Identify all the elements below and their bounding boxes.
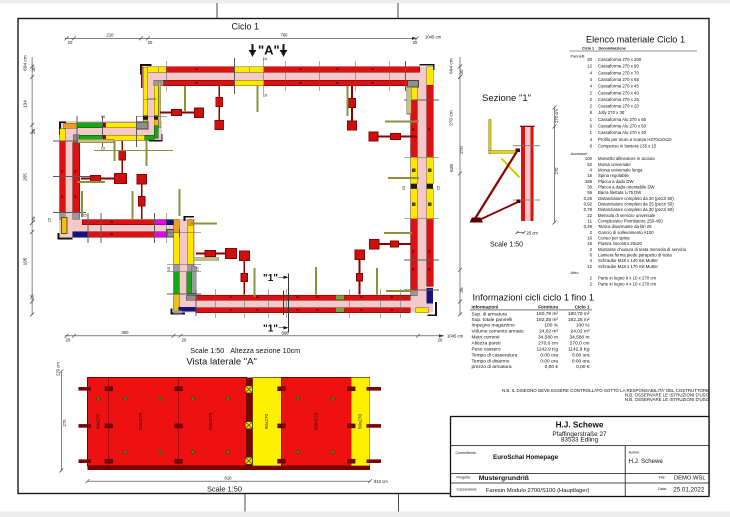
svg-text:255: 255: [23, 173, 28, 181]
svg-text:Data:: Data:: [658, 487, 667, 491]
svg-text:Morsa universale lunga: Morsa universale lunga: [598, 168, 643, 173]
svg-text:Lamiera ferma piede parapetto: Lamiera ferma piede parapetto di testa: [598, 253, 672, 258]
svg-text:H.J. Schewe: H.J. Schewe: [556, 421, 604, 430]
svg-text:15: 15: [401, 185, 406, 190]
svg-text:Sezione "1": Sezione "1": [482, 93, 531, 104]
svg-text:20: 20: [66, 338, 71, 343]
svg-text:Jolly 270 x 30: Jolly 270 x 30: [598, 110, 625, 115]
svg-text:20: 20: [31, 129, 36, 135]
svg-text:0:00 ora: 0:00 ora: [540, 358, 558, 364]
svg-text:270,0 cm: 270,0 cm: [538, 341, 558, 347]
svg-text:0,92: 0,92: [584, 202, 593, 207]
svg-text:25.01.2022: 25.01.2022: [673, 486, 705, 493]
svg-text:20: 20: [68, 40, 73, 45]
svg-text:Schraube M18 x 170 mit Mutter: Schraube M18 x 170 mit Mutter: [598, 264, 659, 269]
svg-text:Barra filettata l=75 DW: Barra filettata l=75 DW: [598, 190, 642, 195]
svg-text:270 cm: 270 cm: [449, 110, 454, 125]
svg-text:16: 16: [587, 236, 592, 241]
svg-text:Distanziatore completo da 25 (: Distanziatore completo da 25 (pezzi 50): [598, 202, 674, 207]
svg-text:Sup. di armatura: Sup. di armatura: [472, 311, 508, 317]
svg-text:11: 11: [588, 219, 593, 224]
svg-text:0,26: 0,26: [584, 196, 593, 201]
svg-text:Morsetto allineatore in acciai: Morsetto allineatore in acciaio: [598, 156, 655, 161]
svg-text:Cassaforma 270 x 45: Cassaforma 270 x 45: [598, 84, 639, 89]
svg-text:Cassaforma Alu 270 x 60: Cassaforma Alu 270 x 60: [598, 117, 647, 122]
svg-text:"1": "1": [263, 324, 278, 335]
svg-text:16: 16: [587, 241, 592, 246]
svg-text:Tanica disarmante da litri 25: Tanica disarmante da litri 25: [598, 224, 652, 229]
svg-text:Scale 1:50: Scale 1:50: [490, 242, 523, 249]
svg-text:Casseratura:: Casseratura:: [457, 488, 478, 492]
svg-text:Complessivo Piombatore 250-450: Complessivo Piombatore 250-450: [598, 219, 663, 224]
svg-text:Cassaforma 270 x 55: Cassaforma 270 x 55: [598, 77, 639, 82]
svg-text:Cassaforma Alu 270 x 50: Cassaforma Alu 270 x 50: [598, 124, 647, 129]
svg-text:186: 186: [585, 179, 593, 184]
svg-text:90x270: 90x270: [264, 414, 269, 430]
svg-text:Cassaforma 270 x 200: Cassaforma 270 x 200: [598, 57, 642, 62]
svg-text:200x270: 200x270: [208, 412, 213, 430]
svg-text:H.J. Schewe: H.J. Schewe: [629, 458, 664, 465]
svg-text:Peso cassero: Peso cassero: [472, 346, 501, 352]
svg-text:Distanziatore completo da 30 (: Distanziatore completo da 30 (pezzi 50): [598, 207, 674, 212]
svg-text:Sup. totale pannelli: Sup. totale pannelli: [472, 317, 513, 323]
svg-text:1142,9 Kg: 1142,9 Kg: [536, 346, 558, 352]
svg-text:0,49: 0,49: [584, 224, 593, 229]
svg-text:Cassaforma 270 x 25: Cassaforma 270 x 25: [598, 97, 639, 102]
svg-text:182,25 m²: 182,25 m²: [536, 317, 558, 323]
svg-text:100: 100: [585, 156, 593, 161]
svg-text:210: 210: [107, 33, 115, 38]
svg-text:200x270: 200x270: [314, 412, 319, 430]
svg-text:Altezza pareti: Altezza pareti: [472, 341, 501, 347]
svg-text:Cassaforma 270 x 90: Cassaforma 270 x 90: [598, 64, 639, 69]
svg-text:Faresin Modulo 2700/S100 (Haup: Faresin Modulo 2700/S100 (Hauptlager): [486, 488, 590, 494]
svg-text:Schraube M18 x 140 mit Mutter: Schraube M18 x 140 mit Mutter: [598, 258, 659, 263]
svg-text:Volume cemento armato: Volume cemento armato: [472, 329, 524, 335]
svg-text:134: 134: [23, 100, 28, 108]
svg-text:760: 760: [281, 33, 289, 38]
svg-text:EuroSchal Homepage: EuroSchal Homepage: [493, 454, 559, 461]
svg-text:10: 10: [101, 114, 106, 119]
svg-text:56: 56: [587, 190, 592, 195]
svg-text:0:00 ora: 0:00 ora: [572, 358, 590, 364]
svg-text:34,580 m: 34,580 m: [569, 335, 589, 341]
svg-text:180,79 m²: 180,79 m²: [568, 311, 590, 317]
svg-text:1045 cm: 1045 cm: [447, 333, 464, 338]
svg-text:Gancio di sollevamento A100: Gancio di sollevamento A100: [598, 230, 654, 235]
svg-text:270: 270: [554, 167, 559, 175]
svg-text:0:00 ora: 0:00 ora: [572, 352, 590, 358]
svg-text:1142,9 Kg: 1142,9 Kg: [568, 346, 590, 352]
svg-text:Tempo di casseratura: Tempo di casseratura: [472, 352, 518, 358]
svg-text:666: 666: [282, 330, 290, 335]
svg-text:Mensola di servizio universale: Mensola di servizio universale: [598, 213, 656, 218]
svg-text:694 cm: 694 cm: [23, 55, 28, 70]
svg-text:100 %: 100 %: [576, 323, 590, 329]
svg-text:Ciclo 1: Ciclo 1: [582, 47, 594, 51]
svg-text:270: 270: [459, 146, 464, 154]
svg-text:0,00 €: 0,00 €: [545, 364, 559, 370]
svg-text:Piastra riscontro 20x20: Piastra riscontro 20x20: [598, 241, 643, 246]
svg-text:195: 195: [23, 257, 28, 265]
svg-text:180,79 m²: 180,79 m²: [536, 311, 558, 317]
svg-text:60x270: 60x270: [96, 414, 101, 430]
svg-text:83533 Edling: 83533 Edling: [561, 437, 599, 444]
svg-text:Spina regolabile: Spina regolabile: [598, 173, 629, 178]
svg-text:25: 25: [31, 216, 36, 222]
svg-text:10: 10: [101, 146, 106, 151]
svg-text:22: 22: [587, 213, 592, 218]
svg-text:N.B. OSSERVARE LE ISTRUZIONI D: N.B. OSSERVARE LE ISTRUZIONI D'USO: [625, 397, 710, 402]
svg-text:Elenco materiale Ciclo 1: Elenco materiale Ciclo 1: [586, 35, 685, 45]
svg-text:0,00 €: 0,00 €: [576, 364, 590, 370]
svg-text:25: 25: [459, 287, 464, 293]
svg-text:810: 810: [225, 476, 233, 481]
svg-text:Tempo di disarmo: Tempo di disarmo: [472, 358, 510, 364]
svg-text:182,25 m²: 182,25 m²: [568, 317, 590, 323]
svg-text:Denominazione: Denominazione: [599, 47, 626, 51]
svg-text:Placca a dado DW: Placca a dado DW: [598, 179, 635, 184]
svg-text:270 cm: 270 cm: [554, 109, 559, 123]
svg-text:15: 15: [47, 217, 52, 222]
svg-text:Morsa universale: Morsa universale: [598, 162, 631, 167]
svg-text:25: 25: [30, 294, 35, 300]
svg-text:Progetto:: Progetto:: [457, 476, 472, 480]
svg-text:"A": "A": [258, 43, 280, 58]
svg-text:25 cm: 25 cm: [527, 231, 539, 236]
svg-text:30: 30: [31, 66, 36, 72]
svg-text:Committente:: Committente:: [456, 451, 477, 455]
svg-text:20: 20: [438, 338, 443, 343]
svg-text:Informazioni cicli ciclo 1 fi: Informazioni cicli ciclo 1 fino 1: [473, 293, 595, 303]
svg-text:Impegno magazzino: Impegno magazzino: [472, 323, 516, 329]
svg-text:20: 20: [182, 338, 187, 343]
svg-text:12: 12: [587, 64, 592, 69]
svg-text:200x270: 200x270: [138, 412, 143, 430]
svg-text:24,02 m³: 24,02 m³: [539, 329, 558, 335]
svg-text:24,02 m³: 24,02 m³: [571, 329, 590, 335]
svg-text:20: 20: [148, 40, 153, 45]
svg-text:Cuneo per spina: Cuneo per spina: [598, 236, 630, 241]
svg-text:Fornitura: Fornitura: [538, 304, 558, 309]
svg-text:30: 30: [459, 69, 464, 75]
svg-text:Compenso in lamiera 135 x 15: Compenso in lamiera 135 x 15: [598, 144, 657, 149]
svg-text:15: 15: [195, 266, 200, 271]
svg-text:Scale 1:50: Scale 1:50: [207, 484, 242, 493]
svg-text:300: 300: [122, 330, 130, 335]
svg-text:Profilo per muro a scarpa H270: Profilo per muro a scarpa H270x10x10: [598, 137, 672, 142]
svg-text:20: 20: [413, 40, 418, 45]
svg-text:0:00 ora: 0:00 ora: [540, 352, 558, 358]
svg-text:34,580 m: 34,580 m: [538, 335, 558, 341]
svg-text:Altro: Altro: [571, 270, 579, 275]
svg-text:100 %: 100 %: [544, 323, 558, 329]
svg-text:20: 20: [587, 57, 592, 62]
svg-text:270 cm: 270 cm: [56, 362, 61, 376]
svg-text:Vista laterale "A": Vista laterale "A": [186, 357, 256, 368]
svg-text:Distanziatore completo da 20 (: Distanziatore completo da 20 (pezzi 50): [598, 196, 674, 201]
svg-text:694 cm: 694 cm: [449, 58, 454, 73]
svg-text:Informazioni: Informazioni: [472, 304, 499, 309]
svg-text:Metri correnti: Metri correnti: [472, 335, 500, 341]
svg-text:270: 270: [62, 419, 67, 427]
svg-text:Parte in legno 4 x 10 x 270 cm: Parte in legno 4 x 10 x 270 cm: [598, 281, 656, 286]
svg-text:Autore:: Autore:: [629, 451, 641, 455]
svg-text:10: 10: [263, 93, 268, 98]
svg-text:Ciclo 1: Ciclo 1: [575, 304, 590, 309]
svg-text:Pannelli: Pannelli: [571, 54, 585, 59]
svg-text:Mustergrundriß: Mustergrundriß: [479, 475, 529, 482]
svg-text:Cassaforma Alu 270 x 40: Cassaforma Alu 270 x 40: [598, 130, 647, 135]
svg-text:Ciclo 1: Ciclo 1: [232, 22, 260, 32]
svg-text:prezzo di armatura: prezzo di armatura: [472, 364, 512, 370]
svg-text:810 cm: 810 cm: [374, 479, 388, 484]
svg-text:Cassaforma 270 x 40: Cassaforma 270 x 40: [598, 90, 639, 95]
svg-text:Parte in legno 9 x 10 x 270 cm: Parte in legno 9 x 10 x 270 cm: [598, 276, 656, 281]
svg-text:"1": "1": [263, 273, 278, 284]
svg-text:52: 52: [587, 162, 592, 167]
svg-text:270,0 cm: 270,0 cm: [570, 341, 590, 347]
svg-text:Cassaforma 270 x 20: Cassaforma 270 x 20: [598, 104, 639, 109]
svg-text:50x270: 50x270: [358, 414, 363, 430]
svg-text:DEMO.WSL: DEMO.WSL: [674, 475, 706, 481]
svg-text:Scale 1:50 Altezza sezione 1: Scale 1:50 Altezza sezione 10cm: [190, 346, 300, 355]
svg-text:15: 15: [436, 185, 441, 190]
svg-text:Placca a dado orientabile DW: Placca a dado orientabile DW: [598, 185, 656, 190]
svg-text:0,78: 0,78: [584, 207, 593, 212]
svg-text:30: 30: [587, 185, 592, 190]
svg-text:Cassaforma 270 x 70: Cassaforma 270 x 70: [598, 70, 639, 75]
svg-text:File:: File:: [659, 476, 666, 480]
svg-text:12: 12: [587, 264, 592, 269]
svg-text:16: 16: [587, 173, 592, 178]
svg-text:1045 cm: 1045 cm: [425, 35, 442, 40]
svg-text:15: 15: [166, 266, 171, 271]
svg-text:628: 628: [449, 164, 454, 172]
svg-text:Montante chiusura di testa men: Montante chiusura di testa mensola di se…: [598, 247, 687, 252]
svg-text:15: 15: [82, 213, 87, 218]
